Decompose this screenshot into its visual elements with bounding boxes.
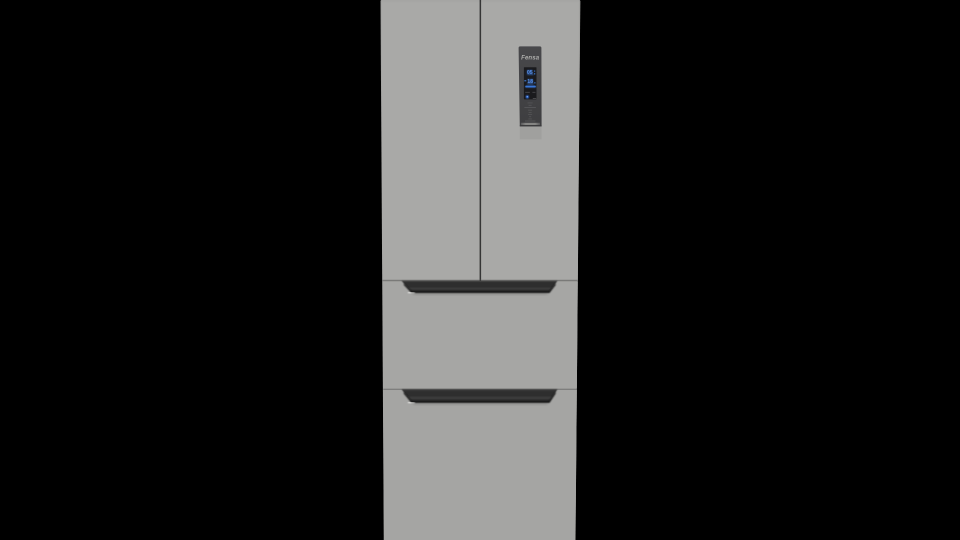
svg-text:Fensa: Fensa: [521, 55, 540, 62]
